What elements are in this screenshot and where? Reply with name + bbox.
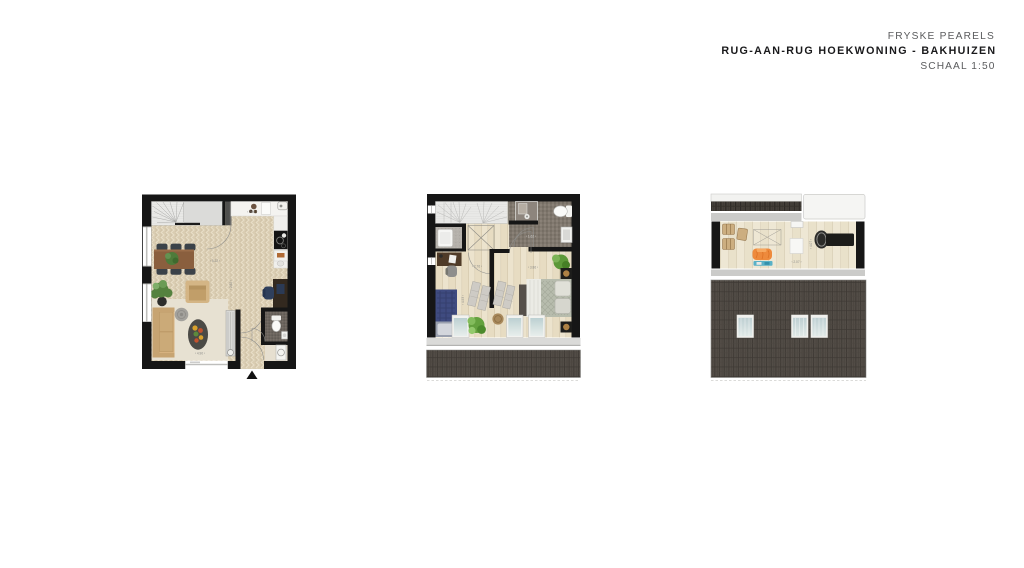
svg-text:‹ 1.62 ›: ‹ 1.62 › [526,235,536,239]
svg-text:‹ 4.93 ›: ‹ 4.93 › [461,295,465,305]
svg-text:‹ 2.76 ›: ‹ 2.76 › [472,265,482,269]
svg-text:‹ 4.90 ›: ‹ 4.90 › [195,352,205,356]
svg-text:FRYSKE PEARELS: FRYSKE PEARELS [888,31,995,42]
svg-text:‹ 2.07 ›: ‹ 2.07 › [791,260,801,264]
svg-text:‹ 2.62 ›: ‹ 2.62 › [247,210,257,214]
svg-text:‹ 2.82 ›: ‹ 2.82 › [229,280,233,290]
svg-text:SCHAAL 1:50: SCHAAL 1:50 [920,61,995,72]
svg-text:‹ 4.07 ›: ‹ 4.07 › [809,239,813,249]
svg-text:‹ 3.86 ›: ‹ 3.86 › [528,266,538,270]
svg-text:‹ 5.22 ›: ‹ 5.22 › [210,259,220,263]
svg-text:RUG-AAN-RUG HOEKWONING - BAKHU: RUG-AAN-RUG HOEKWONING - BAKHUIZEN [721,45,996,57]
